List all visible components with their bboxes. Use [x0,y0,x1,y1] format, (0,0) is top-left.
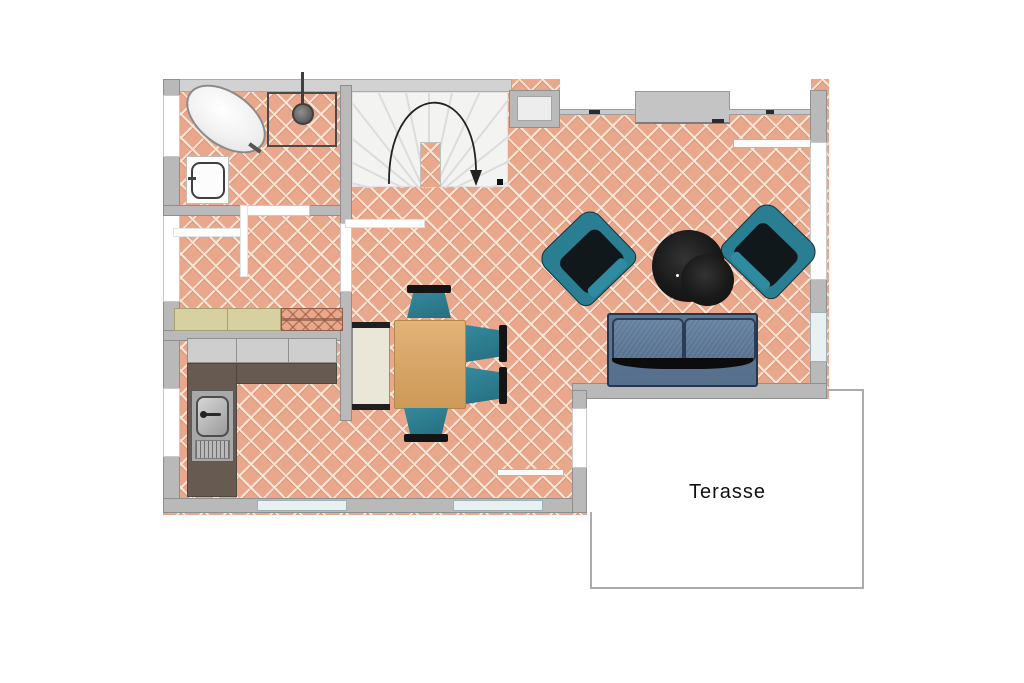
bench-frame-bottom [352,404,390,410]
kitchen-counter-divider-2 [288,339,289,362]
chair-seat [466,367,499,404]
shower-head [292,103,314,125]
partition-hall-horizontal [173,228,248,237]
sofa-back-cushion-left [612,318,684,362]
chair-backrest [407,285,451,293]
terrace-outline-top [827,389,864,391]
window-bottom-2 [453,500,543,511]
door-bathroom [240,205,310,216]
floor-plan: Terasse [0,0,1024,683]
shower-pipe [301,72,304,105]
dining-chair-south [404,408,448,442]
chair-backrest [499,367,507,404]
sofa-shadow-band [612,358,753,369]
bench-frame-top [352,322,390,328]
dining-chair-north [407,285,451,318]
window-left-kitchen [163,388,180,457]
door-mark-1 [589,110,600,114]
hall-sideboard-divider [227,309,228,330]
chair-seat [407,293,451,318]
chair-seat [466,325,499,362]
terrace-outline-right [862,389,864,589]
stair-direction-arrow [340,60,540,200]
rug-highlight-dot [676,274,679,277]
radiator-bottom-wall [497,469,564,476]
door-hall [340,223,352,292]
hall-shelf-hatched [281,308,343,331]
radiator-right-wall [733,139,811,148]
kitchen-counter-divider-1 [236,339,237,362]
chair-backrest [404,434,448,442]
dining-bench [352,322,390,410]
door-terrace-side [572,408,587,468]
dining-chair-east-1 [466,325,507,362]
kitchen-faucet-base [200,411,207,418]
partition-hall-vertical [240,205,248,277]
chair-seat [404,408,448,434]
window-left-bathroom [163,95,180,157]
rug-small-circle [681,254,734,306]
terrace-outline-bottom [590,587,864,589]
door-stop-dot [497,179,503,185]
sofa-back-cushion-right [684,318,756,362]
door-mark-2 [766,110,774,114]
sofa [607,313,758,387]
terrace-label: Terasse [640,481,815,504]
chair-backrest [499,325,507,362]
bathroom-sink-basin [191,162,225,199]
kitchen-counter [187,338,337,363]
bathroom-sink-tap [188,177,196,180]
kitchen-drainboard [195,440,230,459]
dining-table [394,320,466,409]
sill-mark [712,119,724,123]
dining-chair-east-2 [466,367,507,404]
terrace-outline-left [590,512,592,589]
window-right [810,312,827,362]
partition-dining [345,219,425,228]
window-bottom-1 [257,500,347,511]
